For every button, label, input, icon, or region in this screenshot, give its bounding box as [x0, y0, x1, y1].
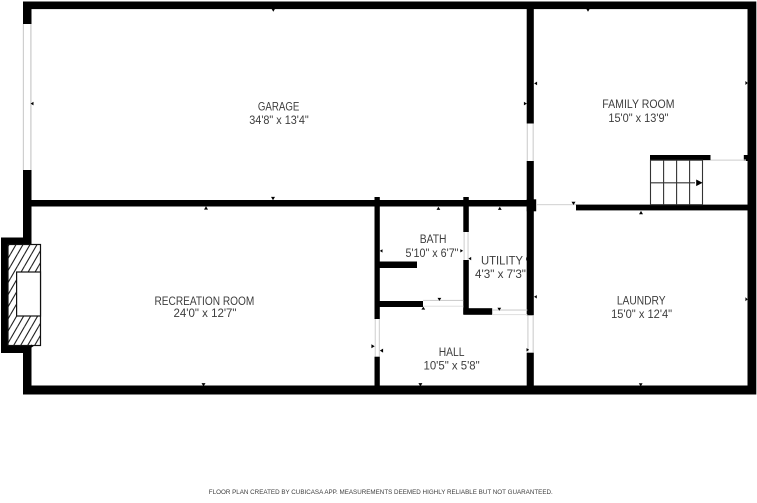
svg-text:FLOOR PLAN CREATED BY CUBICASA: FLOOR PLAN CREATED BY CUBICASA APP. MEAS…	[209, 490, 553, 496]
svg-text:10'5" x 5'8": 10'5" x 5'8"	[424, 358, 480, 372]
svg-text:LAUNDRY: LAUNDRY	[617, 296, 666, 308]
svg-text:24'0" x 12'7": 24'0" x 12'7"	[174, 306, 237, 320]
svg-text:5'10" x 6'7": 5'10" x 6'7"	[406, 246, 459, 260]
svg-text:4'3" x 7'3": 4'3" x 7'3"	[475, 267, 526, 281]
svg-text:15'0" x 12'4": 15'0" x 12'4"	[611, 307, 672, 321]
svg-text:15'0" x 13'9": 15'0" x 13'9"	[608, 111, 668, 125]
svg-text:HALL: HALL	[439, 347, 465, 359]
svg-text:BATH: BATH	[420, 234, 447, 246]
svg-text:UTILITY: UTILITY	[481, 255, 523, 267]
svg-text:GARAGE: GARAGE	[258, 101, 300, 113]
svg-text:34'8" x 13'4": 34'8" x 13'4"	[249, 113, 309, 127]
svg-text:FAMILY ROOM: FAMILY ROOM	[602, 99, 674, 111]
